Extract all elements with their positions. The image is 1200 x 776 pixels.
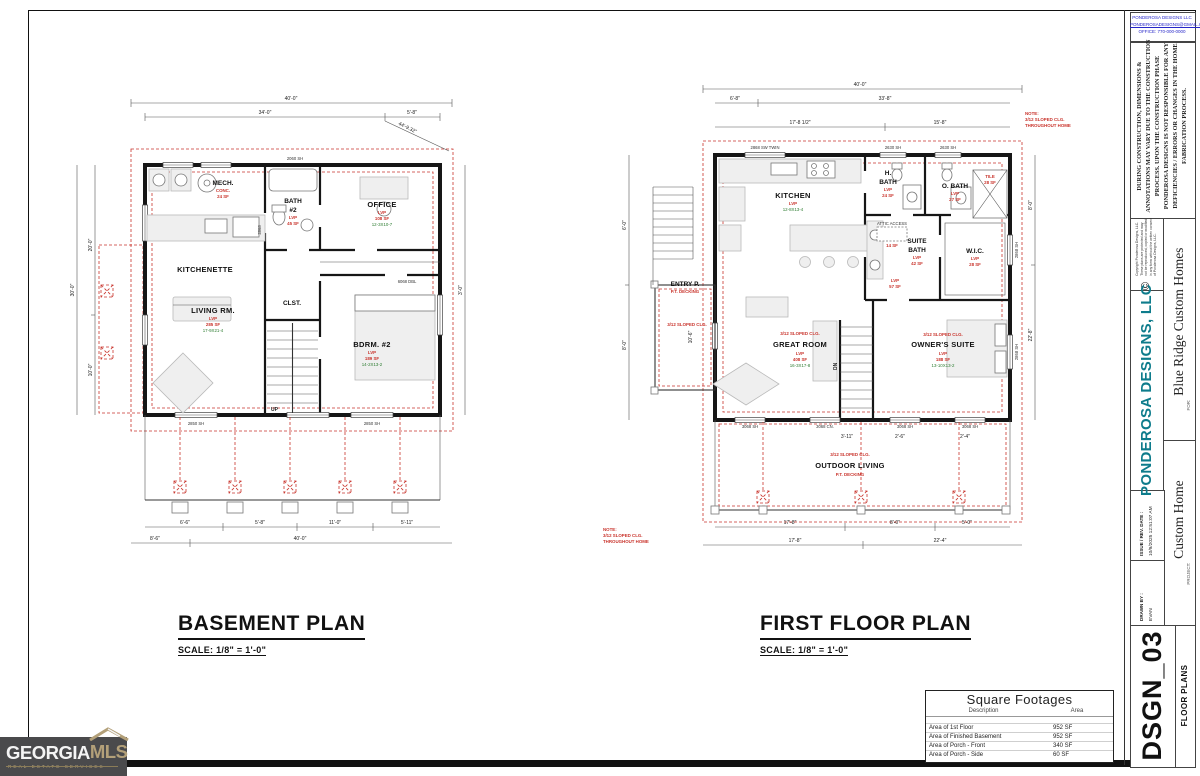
room-label-obath: O. BATH: [942, 183, 969, 190]
room-label-kitchen: KITCHEN: [775, 191, 810, 200]
room-area: 189 SF: [365, 356, 379, 361]
sheet-number-wrap: DSGN_03: [1130, 625, 1175, 766]
room-finish: LVP: [884, 187, 892, 192]
window-tag: 2630 SH: [940, 145, 956, 150]
room-label-clst: CLST.: [283, 300, 301, 307]
room-finish: LVP: [789, 201, 797, 206]
room-area: 108 SF: [375, 216, 389, 221]
company-name-wrap: PONDEROSA DESIGNS, LLC: [1130, 290, 1163, 490]
sheet-name-wrap: FLOOR PLANS: [1175, 625, 1194, 766]
room-area: 57 SF: [889, 284, 901, 289]
square-footages-header: Description Area: [926, 707, 1113, 717]
room-finish: CONC.: [216, 188, 230, 193]
room-area: 28 SF: [984, 180, 996, 185]
project-label: PROJECT:: [1186, 563, 1194, 585]
dim-text: 17'-8 1/2": [789, 120, 810, 126]
door-tag: 3068 CN.: [816, 424, 834, 429]
row-area: 340 SF: [1041, 743, 1113, 749]
room-size: 12-8X13-4: [783, 207, 804, 212]
room-label-wic: W.I.C.: [966, 248, 984, 255]
titleblock-divider: [1124, 10, 1125, 765]
window-tag: 6068 DBL: [398, 279, 417, 284]
stair-label-dn: DN: [833, 362, 839, 370]
sheet-number: DSGN_03: [1137, 630, 1168, 760]
room-label-entry: ENTRY P.: [671, 281, 700, 288]
table-row: Area of Finished Basement 952 SF: [926, 732, 1113, 741]
note-line: NOTE:: [1025, 111, 1039, 116]
basement-plan-drawing: 40'-0" 34'-0" 5'-8" 44'-9.32" 30'-0" 20'…: [55, 85, 525, 605]
note-line: 3/12 SLOPED CLG.: [603, 533, 643, 538]
drawn-by-label: DRAWN BY :: [1139, 593, 1144, 621]
dim-text: 40'-0": [854, 82, 867, 88]
note-line: THROUGHOUT HOME: [603, 539, 649, 544]
georgia-mls-logo: GEORGIA MLS REAL ESTATE SERVICES: [0, 737, 127, 776]
contact-line: PONDEROSA DESIGNS LLC: [1130, 15, 1194, 22]
dim-text: 8'-0": [890, 520, 900, 526]
drawing-sheet: 40'-0" 34'-0" 5'-8" 44'-9.32" 30'-0" 20'…: [0, 0, 1200, 776]
note-line: 3/12 SLOPED CLG.: [1025, 117, 1065, 122]
room-label-suitebath: SUITE: [907, 238, 927, 245]
copyright-note: © Copyright Ponderosa Designs, LLC. Thes…: [1130, 218, 1163, 290]
project-name: Custom Home: [1171, 480, 1187, 558]
room-area: 24 SF: [882, 193, 894, 198]
window-tag: 2060 SH: [287, 156, 303, 161]
row-description: Area of 1st Floor: [926, 725, 1041, 731]
dim-text: 5'-11": [401, 520, 414, 526]
issue-date-label: ISSUE / REV. DATE :: [1139, 512, 1144, 556]
dim-text: 8'-6": [150, 536, 160, 542]
dim-text: 17'-8": [789, 538, 802, 544]
room-finish: LVP: [891, 278, 899, 283]
dim-text: 6'-0": [622, 220, 628, 230]
first-floor-plan-title-block: FIRST FLOOR PLAN SCALE: 1/8" = 1'-0": [760, 612, 971, 658]
basement-plan-title: BASEMENT PLAN: [178, 612, 365, 640]
room-finish: LVP: [951, 191, 959, 196]
window-tag: 3068 SH: [962, 424, 978, 429]
dim-text: 30'-0": [70, 283, 76, 296]
dim-text: 10'-6": [688, 330, 694, 343]
dim-text: 2'-4": [960, 434, 970, 440]
client-name: Blue Ridge Custom Homes: [1171, 248, 1187, 396]
basement-stairs: [267, 323, 318, 413]
room-area: 24 SF: [217, 194, 229, 199]
first-fixtures: [713, 159, 1007, 405]
row-area: 60 SF: [1041, 752, 1113, 758]
dim-text: 17'-8": [784, 520, 797, 526]
logo-word-mls: MLS: [90, 741, 128, 762]
first-floor-plan-title: FIRST FLOOR PLAN: [760, 612, 971, 640]
first-dimensions: 40'-0" 6'-8" 33'-8" 17'-8 1/2" 15'-8" 6'…: [622, 82, 1035, 549]
dim-text: 15'-8": [934, 120, 947, 126]
dim-text: 33'-8": [879, 96, 892, 102]
sloped-ceiling-label: 3/12 SLOPED CLG.: [667, 322, 707, 327]
room-area: 28 SF: [969, 262, 981, 267]
table-row: Area of 1st Floor 952 SF: [926, 723, 1113, 732]
first-stairs: [840, 327, 873, 408]
room-finish: LVP: [209, 316, 217, 321]
dim-text: 5'-8": [255, 520, 265, 526]
room-finish: LVP: [796, 351, 804, 356]
room-area: 42 SF: [911, 261, 923, 266]
row-description: Area of Porch - Side: [926, 752, 1041, 758]
table-row: Area of Porch - Side 60 SF: [926, 750, 1113, 759]
room-finish: LVP: [378, 210, 386, 215]
dim-text: 2'-6": [895, 434, 905, 440]
roof-icon: [88, 727, 134, 741]
room-finish: LVP: [289, 215, 297, 220]
window-tag: 3068 SH: [742, 424, 758, 429]
dim-text: 22'-8": [1028, 328, 1034, 341]
room-size: 12-3X10-7: [372, 222, 393, 227]
window-tag: 2850 SH: [188, 421, 204, 426]
room-finish: LVP: [913, 255, 921, 260]
room-label-mech: MECH.: [213, 180, 234, 187]
dim-text: 3'-11": [841, 434, 854, 440]
room-area: 14 SF: [886, 243, 898, 248]
first-floor-plan-drawing: 40'-0" 6'-8" 33'-8" 17'-8 1/2" 15'-8" 6'…: [595, 75, 1115, 605]
room-finish: LVP: [939, 351, 947, 356]
sloped-ceiling-label: 3/12 SLOPED CLG.: [830, 452, 870, 457]
sloped-ceiling-label: 3/12 SLOPED CLG.: [780, 331, 820, 336]
room-label-bdrm2: BDRM. #2: [353, 340, 390, 349]
door-tag: 2868: [257, 225, 262, 235]
room-label-great: GREAT ROOM: [773, 340, 827, 349]
note-line: NOTE:: [603, 527, 617, 532]
room-label-bath2: #2: [289, 207, 297, 214]
window-tag: 3068 SH: [897, 424, 913, 429]
dim-text: 8'-0": [1028, 200, 1034, 210]
dim-text: 40'-0": [285, 96, 298, 102]
copyright-text: Copyright Ponderosa Designs, LLC. These …: [1135, 218, 1157, 276]
dim-text: 34'-0": [259, 110, 272, 116]
drawn-by-wrap: DRAWN BY : EVAN: [1130, 556, 1163, 625]
dim-text: 6'-6": [180, 520, 190, 526]
room-area: 188 SF: [936, 357, 950, 362]
basement-plan-scale: SCALE: 1/8" = 1'-0": [178, 645, 266, 656]
window-tag: 2850 SH: [364, 421, 380, 426]
room-label-hbath: BATH: [879, 179, 897, 186]
dim-text: 40'-0": [294, 536, 307, 542]
basement-porch: [145, 415, 440, 513]
client-wrap: FOR: Blue Ridge Custom Homes: [1163, 218, 1194, 440]
room-finish: LVP: [368, 350, 376, 355]
window-tag: 2868 SH: [1014, 242, 1019, 258]
column-header-area: Area: [1041, 708, 1113, 714]
room-finish: P.T. DECKING: [836, 472, 865, 477]
issue-date-wrap: ISSUE / REV. DATE : 10/9/2025 12:51:07 A…: [1130, 486, 1163, 560]
sloped-ceiling-label: 3/12 SLOPED CLG.: [923, 332, 963, 337]
logo-word-georgia: GEORGIA: [6, 744, 90, 763]
square-footages-table: Square Footages Description Area Area of…: [925, 690, 1114, 763]
basement-plan-title-block: BASEMENT PLAN SCALE: 1/8" = 1'-0": [178, 612, 365, 658]
square-footages-title: Square Footages: [926, 691, 1113, 707]
drawn-by-value: EVAN: [1149, 608, 1154, 621]
dim-text: 20'-0": [88, 238, 94, 251]
stair-label-up: UP: [271, 407, 279, 413]
room-size: 13-10X13-2: [932, 363, 956, 368]
construction-disclaimer: DURING CONSTRUCTION, DIMENSIONS & ANNOTA…: [1130, 34, 1194, 218]
room-finish: TILE: [985, 174, 995, 179]
issue-date-value: 10/9/2025 12:51:07 AM: [1149, 506, 1154, 556]
room-finish: LVP: [971, 256, 979, 261]
dim-text: 22'-4": [934, 538, 947, 544]
sheet-name: FLOOR PLANS: [1180, 665, 1189, 727]
row-description: Area of Finished Basement: [926, 734, 1041, 740]
room-size: 17-9X21-4: [203, 328, 224, 333]
row-area: 952 SF: [1041, 725, 1113, 731]
first-floor-plan-scale: SCALE: 1/8" = 1'-0": [760, 645, 848, 656]
table-row: Area of Porch - Front 340 SF: [926, 741, 1113, 750]
room-label-living: LIVING RM.: [191, 306, 235, 315]
room-area: 27 SF: [949, 197, 961, 202]
logo-divider: [6, 766, 118, 767]
attic-access-label: ATTIC ACCESS: [877, 221, 907, 226]
dim-text: 5'-0": [962, 520, 972, 526]
window-tag: 2630 SH: [885, 145, 901, 150]
project-wrap: PROJECT: Custom Home: [1163, 440, 1194, 625]
room-area: 408 SF: [793, 357, 807, 362]
note-line: THROUGHOUT HOME: [1025, 123, 1071, 128]
room-label-office: OFFICE: [367, 200, 396, 209]
room-label-owner: OWNER'S SUITE: [911, 340, 975, 349]
dim-text: 10'-0": [88, 363, 94, 376]
room-label-suitebath: BATH: [908, 247, 926, 254]
dim-text: 8'-0": [622, 340, 628, 350]
dim-text: 3'-0": [458, 285, 464, 295]
dim-text: 5'-8": [407, 110, 417, 116]
room-finish: P.T. DECKING: [671, 289, 700, 294]
window-tag: 2868 SH: [1014, 344, 1019, 360]
column-header-description: Description: [926, 708, 1041, 714]
room-area: 285 SF: [206, 322, 220, 327]
room-size: 14-2X13-2: [362, 362, 383, 367]
room-label-bath2: BATH: [284, 198, 302, 205]
row-area: 952 SF: [1041, 734, 1113, 740]
dim-text: 11'-0": [329, 520, 342, 526]
for-label: FOR:: [1186, 400, 1194, 411]
room-area: 45 SF: [287, 221, 299, 226]
room-label-outdoor: OUTDOOR LIVING: [815, 461, 885, 470]
room-label-kitchenette: KITCHENETTE: [177, 265, 233, 274]
room-label-hbath: H.: [885, 170, 892, 177]
row-description: Area of Porch - Front: [926, 743, 1041, 749]
room-size: 16-3X17-8: [790, 363, 811, 368]
dim-text: 6'-8": [730, 96, 740, 102]
company-name: PONDEROSA DESIGNS, LLC: [1138, 284, 1155, 496]
contact-link[interactable]: PONDEROSADESIGNS@GMAIL.COM: [1130, 22, 1194, 29]
window-tag: 2868 SW TWIN: [750, 145, 779, 150]
